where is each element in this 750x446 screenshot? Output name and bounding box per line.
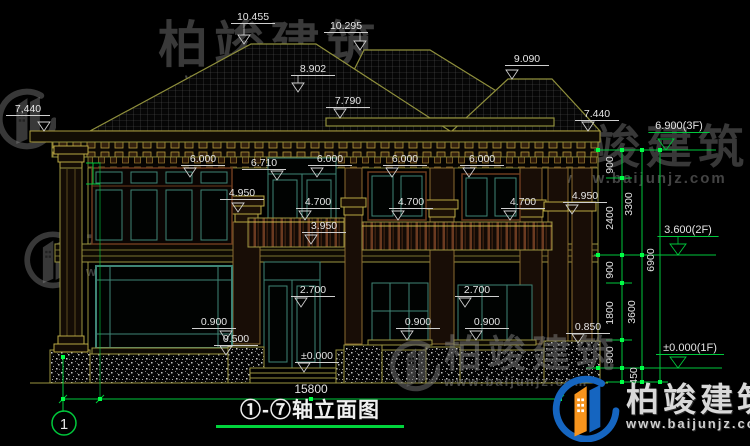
svg-text:7,440: 7,440 <box>15 103 41 115</box>
grip-handle <box>658 380 662 384</box>
window-1f-large <box>96 266 232 348</box>
title-underline <box>216 425 404 428</box>
grip-handle <box>640 148 644 152</box>
dim-value: 2400 <box>604 206 616 230</box>
elevation-marker: 3.600(2F) <box>657 224 718 255</box>
window-1f-center <box>372 283 428 340</box>
elevation-marker: ±0.000(1F) <box>656 342 724 368</box>
svg-text:6.000: 6.000 <box>392 153 418 165</box>
dim-value: 900 <box>604 156 616 174</box>
svg-text:0.900: 0.900 <box>474 316 500 328</box>
svg-text:9.090: 9.090 <box>514 53 540 65</box>
svg-text:7.790: 7.790 <box>335 95 361 107</box>
elevation-marker: 7,440 <box>6 103 50 131</box>
drawing-title: ①-⑦轴立面图 <box>200 400 420 421</box>
svg-text:4.700: 4.700 <box>510 196 536 208</box>
svg-text:4.700: 4.700 <box>305 196 331 208</box>
grip-handle <box>620 380 624 384</box>
grip-handle <box>640 253 644 257</box>
svg-text:6.710: 6.710 <box>251 157 277 169</box>
dim-value: 450 <box>628 367 640 385</box>
svg-text:0.900: 0.900 <box>405 316 431 328</box>
grip-handle <box>620 253 624 257</box>
grip-handle <box>558 397 562 401</box>
svg-text:3.600(2F): 3.600(2F) <box>664 224 712 236</box>
elevation-marker: 6.900(3F) <box>648 120 709 150</box>
dim-value: 3300 <box>623 192 635 216</box>
svg-text:10.455: 10.455 <box>237 11 269 23</box>
grip-handle <box>620 176 624 180</box>
drawing-title-block: ①-⑦轴立面图 <box>200 400 420 428</box>
upper-eave-band <box>326 118 554 126</box>
dim-value: 1 <box>60 416 68 433</box>
grip-handle <box>61 397 65 401</box>
elevation-marker: 10.455 <box>231 11 275 44</box>
svg-text:0.850: 0.850 <box>575 321 601 333</box>
eave-fascia <box>30 131 600 142</box>
svg-text:10.295: 10.295 <box>330 20 362 32</box>
svg-text:3.950: 3.950 <box>311 220 337 232</box>
grip-handle <box>620 281 624 285</box>
svg-text:6.000: 6.000 <box>317 153 343 165</box>
grip-handle <box>620 338 624 342</box>
svg-text:0.500: 0.500 <box>223 333 249 345</box>
balcony-railings <box>248 218 552 250</box>
dim-value: 15800 <box>294 382 328 396</box>
svg-text:6.900(3F): 6.900(3F) <box>655 120 703 132</box>
grip-handle <box>61 355 65 359</box>
svg-text:4.950: 4.950 <box>572 190 598 202</box>
elevation-marker: 9.090 <box>505 53 549 79</box>
grip-handle <box>640 380 644 384</box>
svg-text:±0.000(1F): ±0.000(1F) <box>663 342 717 354</box>
cad-canvas: 柏竣建筑 www.baijunjz.com 柏竣建筑 www.baijunjz.… <box>0 0 750 446</box>
svg-text:0.900: 0.900 <box>201 316 227 328</box>
dim-value: 3600 <box>626 300 638 324</box>
grip-handle <box>658 148 662 152</box>
grip-handle <box>640 366 644 370</box>
svg-text:±0.000: ±0.000 <box>301 350 333 362</box>
grip-handle <box>596 148 600 152</box>
door-steps <box>250 368 336 383</box>
svg-text:4.700: 4.700 <box>398 196 424 208</box>
svg-text:2.700: 2.700 <box>464 284 490 296</box>
dim-value: 900 <box>604 261 616 279</box>
grip-handle <box>98 397 102 401</box>
svg-text:6.000: 6.000 <box>190 153 216 165</box>
dim-value: 6900 <box>645 248 657 272</box>
svg-text:2.700: 2.700 <box>300 284 326 296</box>
svg-text:7.440: 7.440 <box>584 108 610 120</box>
svg-text:6.000: 6.000 <box>469 153 495 165</box>
elevation-drawing: 10.45510.2958.9027.7909.0907,4407.4406.0… <box>0 0 750 446</box>
elevation-marker: 10.295 <box>324 20 368 50</box>
svg-text:4.950: 4.950 <box>229 187 255 199</box>
dim-value: 1800 <box>604 301 616 325</box>
svg-text:8.902: 8.902 <box>300 63 326 75</box>
grip-handle <box>620 366 624 370</box>
grip-handle <box>620 148 624 152</box>
dim-value: 900 <box>604 346 616 364</box>
grip-handle <box>596 366 600 370</box>
grip-handle <box>596 253 600 257</box>
